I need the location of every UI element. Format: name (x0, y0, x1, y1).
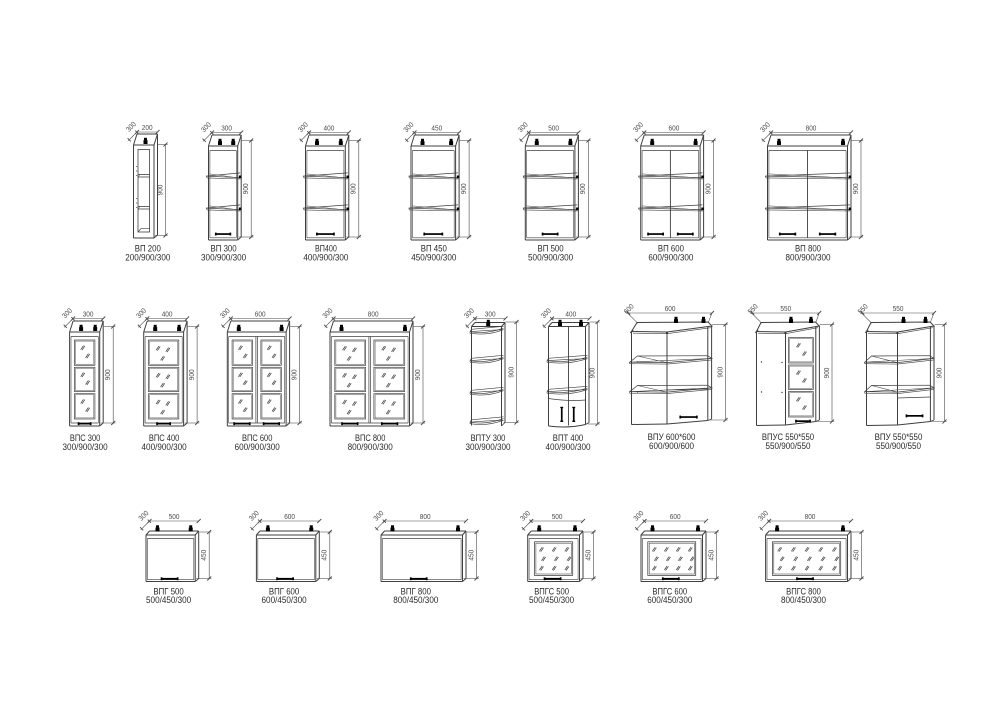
svg-text:300: 300 (83, 309, 94, 318)
svg-text:450: 450 (431, 123, 442, 132)
svg-text:450: 450 (466, 550, 475, 561)
svg-text:900: 900 (703, 183, 712, 194)
svg-text:800: 800 (368, 309, 379, 318)
svg-text:200: 200 (142, 123, 153, 132)
svg-text:800: 800 (806, 123, 817, 132)
svg-text:200/900/300: 200/900/300 (125, 252, 170, 262)
svg-text:550: 550 (893, 304, 904, 313)
svg-text:900: 900 (413, 369, 422, 380)
svg-text:900: 900 (934, 368, 943, 379)
svg-text:500/900/300: 500/900/300 (528, 252, 573, 262)
svg-text:900: 900 (349, 183, 358, 194)
svg-text:900: 900 (822, 368, 831, 379)
svg-text:800/900/300: 800/900/300 (348, 442, 393, 452)
svg-text:450/900/300: 450/900/300 (411, 252, 456, 262)
svg-text:800/450/300: 800/450/300 (781, 595, 826, 605)
svg-text:900: 900 (289, 369, 298, 380)
svg-text:600/900/300: 600/900/300 (235, 442, 280, 452)
svg-text:600/450/300: 600/450/300 (262, 595, 307, 605)
svg-text:900: 900 (851, 183, 860, 194)
svg-text:400/900/300: 400/900/300 (303, 252, 348, 262)
svg-text:450: 450 (851, 550, 860, 561)
svg-text:900: 900 (241, 183, 250, 194)
svg-text:900: 900 (155, 185, 164, 196)
svg-text:500: 500 (552, 512, 563, 521)
svg-text:550: 550 (780, 304, 791, 313)
svg-text:400: 400 (162, 309, 173, 318)
svg-text:600: 600 (284, 512, 295, 521)
svg-text:600/450/300: 600/450/300 (647, 595, 692, 605)
svg-text:500/450/300: 500/450/300 (529, 595, 574, 605)
svg-text:300/900/300: 300/900/300 (201, 252, 246, 262)
svg-text:900: 900 (506, 367, 515, 378)
svg-text:500/450/300: 500/450/300 (146, 595, 191, 605)
svg-text:300/900/300: 300/900/300 (465, 442, 510, 452)
svg-text:600/900/600: 600/900/600 (649, 441, 694, 451)
svg-text:550/900/550: 550/900/550 (876, 441, 921, 451)
svg-text:450: 450 (199, 550, 208, 561)
svg-text:600: 600 (255, 309, 266, 318)
svg-text:900: 900 (459, 183, 468, 194)
svg-text:450: 450 (706, 550, 715, 561)
svg-text:900: 900 (587, 368, 596, 379)
svg-text:800: 800 (805, 512, 816, 521)
svg-text:900: 900 (103, 369, 112, 380)
svg-text:600: 600 (665, 304, 676, 313)
svg-text:600: 600 (670, 512, 681, 521)
svg-text:450: 450 (320, 550, 329, 561)
svg-text:500: 500 (169, 512, 180, 521)
svg-text:400: 400 (324, 123, 335, 132)
svg-text:900: 900 (187, 369, 196, 380)
svg-text:900: 900 (578, 183, 587, 194)
svg-text:800/900/300: 800/900/300 (785, 252, 830, 262)
svg-text:600: 600 (669, 123, 680, 132)
svg-text:300: 300 (221, 123, 232, 132)
svg-text:600/900/300: 600/900/300 (648, 252, 693, 262)
svg-text:300: 300 (485, 309, 496, 318)
svg-text:800: 800 (420, 512, 431, 521)
svg-text:500: 500 (548, 123, 559, 132)
svg-text:400: 400 (565, 309, 576, 318)
svg-text:300/900/300: 300/900/300 (63, 442, 108, 452)
svg-text:550/900/550: 550/900/550 (765, 441, 810, 451)
svg-text:800/450/300: 800/450/300 (393, 595, 438, 605)
svg-text:450: 450 (583, 550, 592, 561)
svg-text:900: 900 (715, 367, 724, 378)
svg-text:400/900/300: 400/900/300 (142, 442, 187, 452)
svg-text:400/900/300: 400/900/300 (545, 442, 590, 452)
